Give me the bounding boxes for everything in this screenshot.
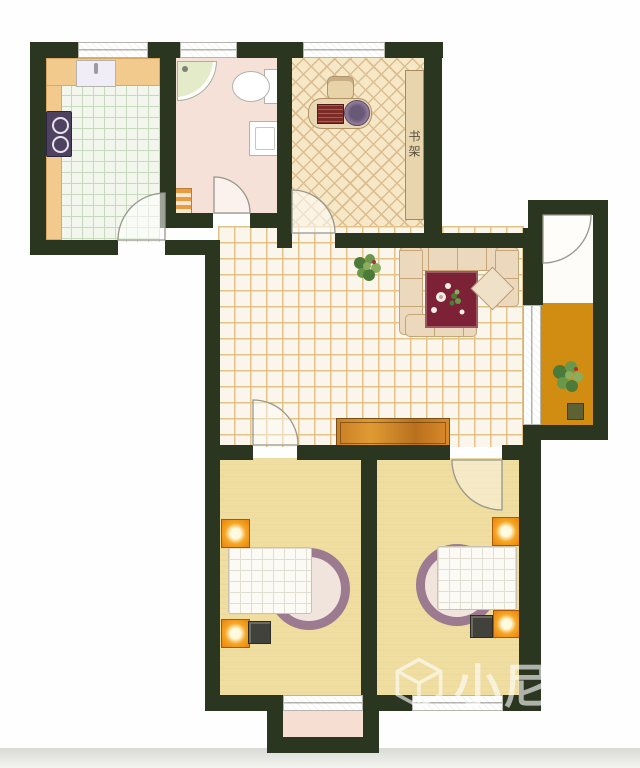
burner-icon: [52, 117, 69, 134]
burner-icon: [52, 136, 69, 153]
floor-plan: 书架: [0, 0, 640, 768]
bookshelf: 书架: [405, 70, 424, 220]
window: [303, 42, 385, 58]
wall: [30, 240, 118, 255]
stool: [470, 615, 493, 638]
nightstand-lamp: [221, 519, 250, 548]
kitchen-floor: [60, 84, 160, 242]
wall: [250, 213, 283, 228]
kitchen-sink: [76, 60, 116, 87]
wall: [30, 42, 46, 255]
bed: [228, 547, 312, 614]
wall: [277, 58, 292, 233]
bookshelf-label: 书架: [406, 130, 423, 160]
bay-window-floor: [283, 710, 363, 738]
keyboard: [317, 104, 344, 124]
watermark-text: 小尼宅配: [454, 648, 640, 717]
watermark: 小尼宅配: [392, 648, 640, 717]
balcony-entry-floor: [541, 214, 593, 304]
bay-window: [283, 695, 363, 711]
nightstand-lamp: [221, 619, 250, 648]
stool: [248, 621, 271, 644]
cube-logo-icon: [392, 656, 446, 710]
desk-chair: [327, 76, 354, 100]
stove: [46, 111, 72, 157]
rug: [425, 271, 478, 328]
window: [78, 42, 148, 58]
wall: [528, 215, 543, 305]
wall: [424, 42, 442, 248]
wall: [205, 445, 253, 460]
wall: [528, 425, 608, 440]
computer-monitor: [344, 100, 370, 126]
nightstand-lamp: [493, 610, 520, 638]
balcony-door-window: [523, 305, 541, 425]
wall: [593, 200, 608, 440]
wall: [205, 240, 220, 710]
wall: [361, 445, 377, 711]
planter-pot: [567, 403, 584, 420]
wall: [363, 695, 379, 753]
toilet: [232, 71, 270, 102]
wall: [160, 213, 213, 228]
bed: [437, 546, 517, 610]
nightstand-lamp: [492, 517, 520, 546]
wall: [335, 233, 541, 248]
wall: [277, 233, 292, 248]
tv-cabinet: [336, 418, 450, 448]
wall: [160, 58, 176, 214]
window: [180, 42, 237, 58]
